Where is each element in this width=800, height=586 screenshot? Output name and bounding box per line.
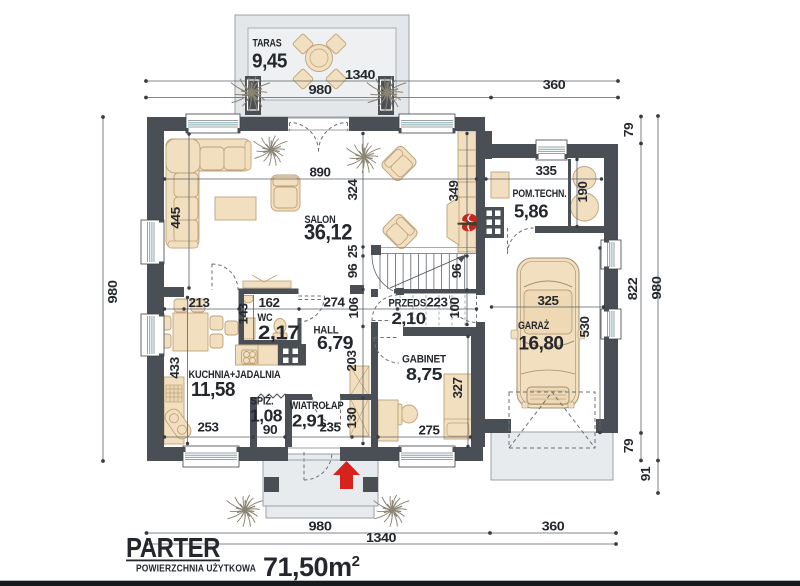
svg-text:1340: 1340 (366, 531, 397, 545)
svg-text:203: 203 (345, 350, 359, 371)
svg-text:822: 822 (626, 277, 640, 300)
svg-text:1340: 1340 (345, 68, 376, 82)
svg-text:360: 360 (543, 78, 566, 92)
svg-text:PARTER: PARTER (126, 532, 220, 563)
svg-text:2,10: 2,10 (392, 309, 426, 328)
svg-text:79: 79 (622, 438, 636, 453)
svg-text:TARAS: TARAS (253, 38, 282, 50)
svg-text:327: 327 (451, 377, 465, 398)
svg-text:190: 190 (576, 181, 590, 202)
svg-text:274: 274 (324, 296, 345, 310)
svg-text:980: 980 (309, 83, 333, 97)
svg-text:71,50m2: 71,50m2 (263, 552, 360, 582)
svg-text:890: 890 (310, 166, 331, 180)
svg-text:36,12: 36,12 (304, 220, 352, 245)
svg-text:162: 162 (259, 296, 280, 310)
svg-text:335: 335 (536, 164, 557, 178)
svg-text:6,79: 6,79 (317, 332, 353, 353)
svg-text:8,75: 8,75 (406, 364, 443, 384)
svg-text:79: 79 (622, 122, 636, 137)
svg-text:96: 96 (450, 263, 464, 278)
svg-text:PRZEDS.: PRZEDS. (389, 298, 429, 310)
svg-text:100: 100 (448, 297, 462, 318)
svg-text:GARAŻ: GARAŻ (518, 319, 549, 332)
svg-text:253: 253 (198, 421, 219, 435)
svg-text:106: 106 (347, 297, 361, 318)
svg-text:143: 143 (237, 303, 251, 324)
svg-text:223: 223 (427, 296, 448, 310)
svg-text:130: 130 (345, 407, 359, 428)
svg-text:349: 349 (447, 180, 461, 201)
svg-text:530: 530 (578, 316, 592, 337)
svg-text:325: 325 (538, 294, 559, 308)
svg-text:360: 360 (542, 520, 565, 534)
svg-text:2,17: 2,17 (258, 323, 299, 344)
svg-text:POM.TECHN.: POM.TECHN. (513, 188, 567, 200)
svg-text:213: 213 (189, 296, 210, 310)
svg-text:POWIERZCHNIA UŻYTKOWA: POWIERZCHNIA UŻYTKOWA (136, 562, 256, 575)
svg-text:91: 91 (639, 466, 653, 481)
svg-text:980: 980 (106, 280, 120, 304)
svg-text:980: 980 (650, 276, 664, 300)
svg-text:5,86: 5,86 (514, 201, 548, 222)
svg-text:324: 324 (346, 179, 360, 200)
svg-text:25: 25 (346, 245, 360, 258)
svg-text:980: 980 (309, 520, 333, 534)
svg-text:1,08: 1,08 (250, 406, 283, 426)
svg-text:433: 433 (168, 357, 182, 379)
svg-text:275: 275 (419, 424, 440, 438)
svg-text:16,80: 16,80 (519, 333, 565, 355)
svg-text:11,58: 11,58 (191, 379, 235, 401)
svg-text:445: 445 (169, 207, 183, 229)
svg-text:9,45: 9,45 (252, 51, 287, 73)
svg-text:2,91: 2,91 (292, 411, 327, 431)
svg-text:96: 96 (346, 263, 360, 278)
